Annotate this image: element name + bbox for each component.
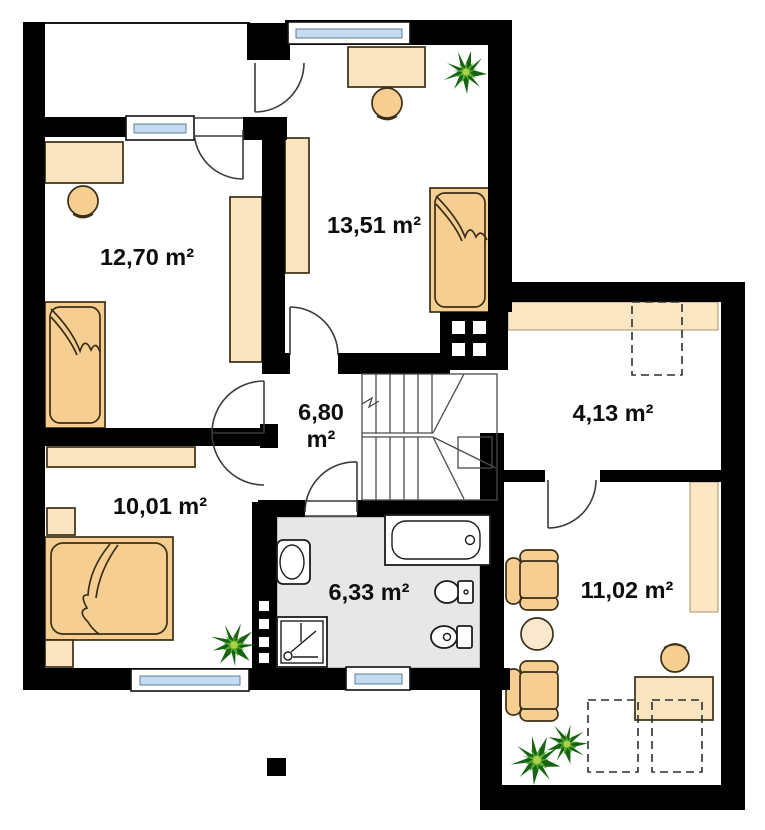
room-label-study: 11,02 m²	[581, 577, 674, 603]
wall-top-corner-block	[247, 23, 290, 60]
wall-landing-study-right	[600, 470, 721, 482]
floor-plan-canvas: 12,70 m² 13,51 m² 6,80 m² 4,13 m² 10,01 …	[0, 0, 765, 830]
room-label-bedroom-left: 12,70 m²	[100, 244, 194, 270]
toilet-bowl	[435, 581, 459, 603]
window-glass	[355, 674, 402, 684]
room-label-landing: 4,13 m²	[573, 400, 654, 426]
desk	[348, 47, 425, 87]
window-glass	[140, 676, 240, 685]
room-label-bedroom-lower: 10,01 m²	[113, 493, 207, 519]
study-furniture	[506, 550, 713, 721]
wall-divider-end-block	[260, 424, 278, 448]
bidet-tank	[457, 626, 472, 648]
wall-exterior-left	[23, 22, 45, 690]
chimney-flue	[473, 343, 486, 356]
chimney-marker	[267, 758, 286, 776]
floor-plan-page: 12,70 m² 13,51 m² 6,80 m² 4,13 m² 10,01 …	[0, 0, 765, 830]
desk	[45, 142, 123, 183]
desk-chair	[68, 186, 98, 216]
wall-block	[243, 117, 287, 140]
vent-flue	[259, 637, 269, 647]
stair-walk-line	[433, 374, 464, 433]
chimney-block	[440, 312, 508, 370]
skylight-dashed	[588, 700, 638, 772]
wall-bathroom-top-left	[258, 500, 305, 517]
window-glass	[296, 29, 402, 38]
armchair-seat	[520, 561, 558, 598]
wall-exterior-right-main	[488, 20, 512, 312]
nightstand	[45, 640, 73, 667]
door-hall-to-bedroom-top	[290, 307, 338, 355]
door-hall-to-bathroom	[305, 462, 357, 516]
wall-between-bedrooms	[262, 137, 285, 374]
wall-landing-study-left	[497, 470, 545, 482]
armchair-seat	[520, 672, 558, 709]
landing-knee-wall-band	[508, 302, 718, 330]
door-hall-double-swing	[212, 381, 264, 485]
door-open-area-to-bedroom-top	[255, 63, 304, 112]
plant	[444, 51, 487, 94]
wall-hall-top-left	[262, 353, 290, 374]
coffee-table	[521, 618, 553, 650]
vent-flue	[259, 653, 269, 663]
room-label-bedroom-top: 13,51 m²	[327, 212, 421, 238]
wall-exterior-bottom	[23, 668, 510, 690]
wall-exterior-bottom-wing	[480, 785, 745, 810]
chimney-flue	[473, 321, 486, 334]
armchair-back	[506, 558, 521, 604]
desk	[635, 677, 713, 720]
door-landing-to-study	[548, 480, 596, 528]
chimney-flue	[452, 321, 465, 334]
wall-open-area-bottom	[45, 117, 130, 137]
wall-exterior-left-wing	[480, 688, 502, 788]
washbasin	[277, 540, 310, 584]
room-label-hall-value: 6,80	[298, 399, 344, 425]
chimney-flue	[452, 343, 465, 356]
wall-bedrooms-divider	[23, 428, 278, 446]
study-knee-wall-band	[690, 482, 718, 612]
wall-hall-top-right	[338, 353, 450, 374]
double-bed	[45, 537, 173, 640]
vent-flue	[259, 619, 269, 629]
vent-flue	[259, 601, 269, 611]
bedroom-left-furniture	[45, 142, 262, 428]
desk-chair	[372, 88, 402, 118]
wardrobe	[230, 197, 262, 362]
shelf	[47, 447, 195, 467]
bedroom-lower-furniture	[45, 447, 195, 667]
staircase	[362, 374, 497, 500]
door-open-area-to-bedroom-left	[194, 118, 243, 179]
wall-exterior-top-wing	[505, 282, 745, 302]
nightstand	[47, 508, 75, 535]
room-label-bathroom: 6,33 m²	[329, 579, 410, 605]
interior-window-glass	[134, 124, 186, 133]
wall-exterior-right-wing	[721, 282, 745, 810]
wardrobe	[285, 138, 309, 273]
room-label-hall-unit: m²	[307, 426, 336, 452]
bedroom-top-furniture	[285, 47, 490, 312]
toilet-tank	[458, 581, 473, 603]
